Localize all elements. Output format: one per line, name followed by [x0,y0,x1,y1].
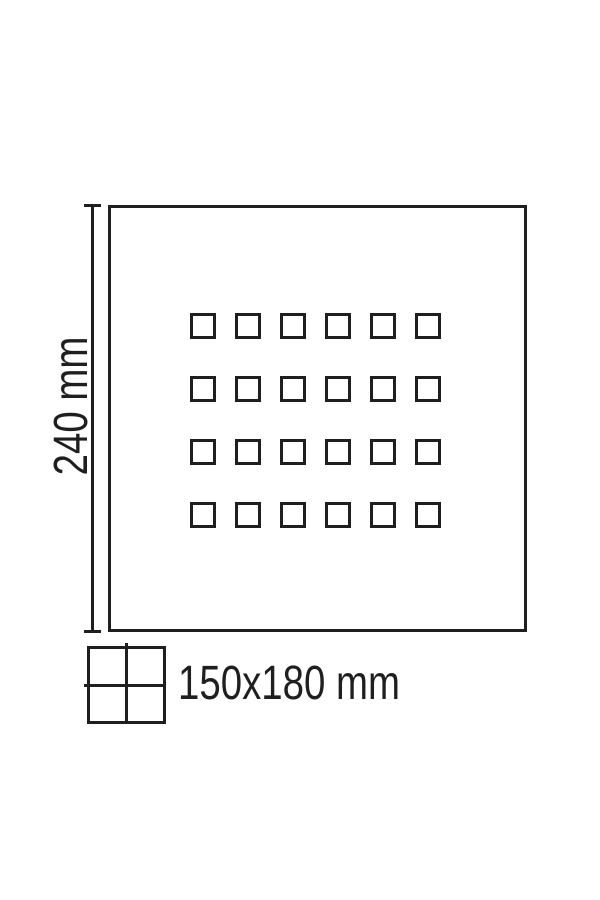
perforation-square [415,439,441,465]
perforation-square [325,313,351,339]
height-dimension-tick-bottom [84,630,101,633]
tile-size-label: 150x180 mm [178,660,400,708]
perforation-square [370,313,396,339]
perforation-square [190,439,216,465]
perforation-square [415,502,441,528]
perforation-square [415,313,441,339]
tile-size-icon [87,646,166,724]
perforation-square [370,502,396,528]
perforation-square [325,439,351,465]
perforation-square [190,313,216,339]
perforation-square [235,376,261,402]
perforation-square [235,439,261,465]
perforation-grid [190,313,441,528]
perforation-square [325,502,351,528]
perforation-square [325,376,351,402]
perforation-square [235,313,261,339]
perforation-square [190,376,216,402]
perforation-square [235,502,261,528]
perforation-square [370,439,396,465]
perforation-square [280,376,306,402]
perforation-square [280,313,306,339]
perforation-square [370,376,396,402]
perforation-square [190,502,216,528]
perforation-square [280,439,306,465]
tile-icon-horizontal-divider [84,684,166,687]
perforation-square [415,376,441,402]
height-dimension-tick-top [84,204,101,207]
perforation-square [280,502,306,528]
diagram-canvas: 240 mm 150x180 mm [0,0,600,900]
height-dimension-label: 240 mm [48,337,96,476]
